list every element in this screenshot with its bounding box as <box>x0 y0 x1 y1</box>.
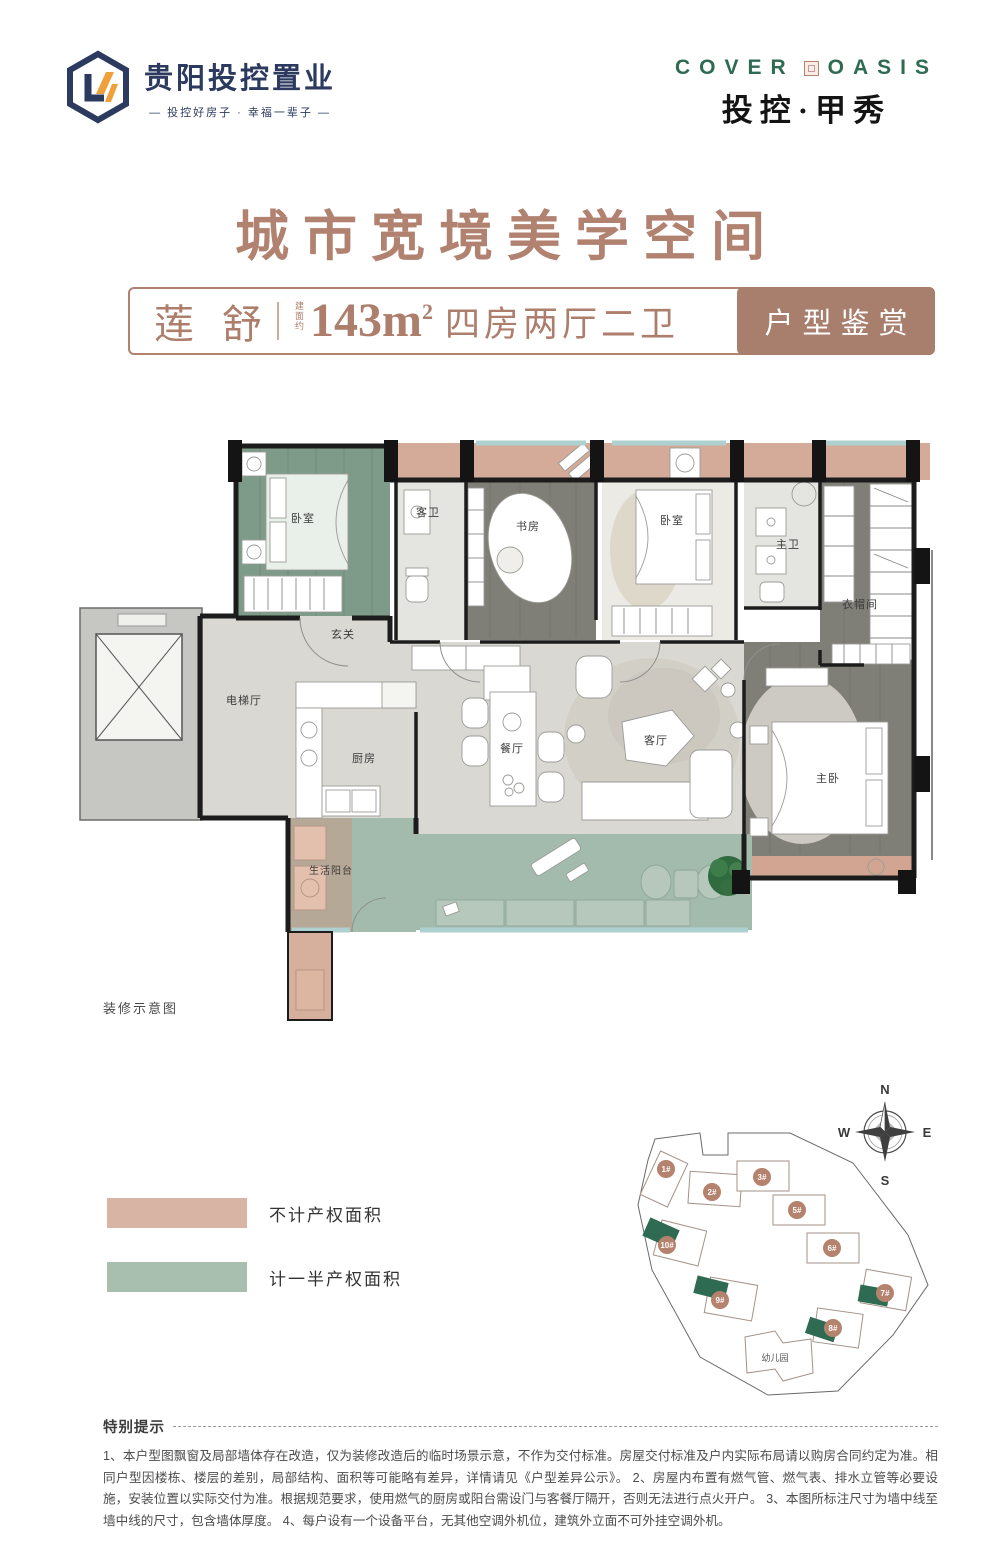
legend-swatch-pink <box>107 1198 247 1228</box>
room-label-bedroom-a: 卧室 <box>291 511 315 525</box>
company-name: 贵阳投控置业 <box>144 55 336 97</box>
company-logo: 贵阳投控置业 — 投控好房子 · 幸福一辈子 — <box>66 50 336 124</box>
company-logo-icon <box>66 50 130 124</box>
brand-en-right: OASIS <box>828 56 938 80</box>
building-label-6: 6# <box>828 1244 837 1253</box>
plan-note: 装修示意图 <box>103 998 178 1017</box>
unit-info-bar: 莲 舒 建面约 143m2 四房两厅二卫 户型鉴赏 <box>128 287 935 355</box>
room-label-elevator-hall: 电梯厅 <box>226 694 262 707</box>
area-prefix: 建面约 <box>293 301 306 341</box>
company-tagline: — 投控好房子 · 幸福一辈子 — <box>144 104 336 120</box>
badge-huxing-appreciation: 户型鉴赏 <box>737 287 935 355</box>
unit-layout: 四房两厅二卫 <box>445 296 679 347</box>
room-label-cloakroom: 衣帽间 <box>842 597 878 611</box>
room-label-guest-bath: 客卫 <box>416 505 440 519</box>
compass-n: N <box>880 1082 889 1097</box>
brochure-page: 贵阳投控置业 — 投控好房子 · 幸福一辈子 — COVER OASIS 投控·… <box>0 0 1000 1565</box>
room-label-dining: 餐厅 <box>500 741 524 755</box>
footer-disclaimer: 特别提示 1、本户型图飘窗及局部墙体存在改造，仅为装修改造后的临时场景示意，不作… <box>103 1416 938 1533</box>
building-label-8: 8# <box>829 1324 838 1333</box>
building-label-10: 10# <box>660 1241 674 1250</box>
divider <box>277 302 279 340</box>
building-label-1: 1# <box>662 1165 671 1174</box>
room-label-master-bedroom: 主卧 <box>816 772 840 785</box>
room-label-master-bath: 主卫 <box>776 538 800 551</box>
elevator-core <box>80 608 202 820</box>
room-label-living: 客厅 <box>644 733 668 747</box>
brand-cn: 投控·甲秀 <box>675 85 938 130</box>
legend-label-nonproperty: 不计产权面积 <box>269 1201 383 1226</box>
room-label-study: 书房 <box>516 520 540 533</box>
room-label-bedroom-b: 卧室 <box>660 513 684 527</box>
room-label-kitchen: 厨房 <box>352 752 376 765</box>
building-label-9: 9# <box>716 1296 725 1305</box>
building-label-2: 2# <box>708 1188 717 1197</box>
footer-title: 特别提示 <box>103 1416 165 1437</box>
legend-swatch-green <box>107 1262 247 1292</box>
kindergarten-label: 幼儿园 <box>761 1352 788 1363</box>
legend-item-half-property: 计一半产权面积 <box>107 1262 402 1292</box>
room-label-foyer: 玄关 <box>331 627 355 641</box>
page-title: 城市宽境美学空间 <box>0 192 1000 271</box>
project-brand: COVER OASIS 投控·甲秀 <box>675 56 938 130</box>
building-label-5: 5# <box>793 1206 802 1215</box>
brand-en-left: COVER <box>675 56 795 80</box>
building-label-7: 7# <box>881 1289 890 1298</box>
floorplan-drawing: 卧室 客卫 书房 卧室 主卫 衣帽间 玄关 电梯厅 厨房 餐厅 客厅 主卧 生活… <box>60 430 940 1030</box>
room-label-service-balcony: 生活阳台 <box>309 864 353 877</box>
footer-dashed-line <box>173 1426 938 1427</box>
area-value: 143m2 <box>310 297 433 345</box>
legend-item-nonproperty: 不计产权面积 <box>107 1198 383 1228</box>
building-label-3: 3# <box>758 1173 767 1182</box>
legend-label-half-property: 计一半产权面积 <box>269 1265 402 1290</box>
unit-name: 莲 舒 <box>154 292 271 350</box>
footer-body: 1、本户型图飘窗及局部墙体存在改造，仅为装修改造后的临时场景示意，不作为交付标准… <box>103 1446 938 1533</box>
brand-seal-icon <box>804 61 819 76</box>
siteplan-map: 1# 2# 3# 5# 6# 10# 9# 8# 7# 幼儿园 <box>625 1125 945 1397</box>
